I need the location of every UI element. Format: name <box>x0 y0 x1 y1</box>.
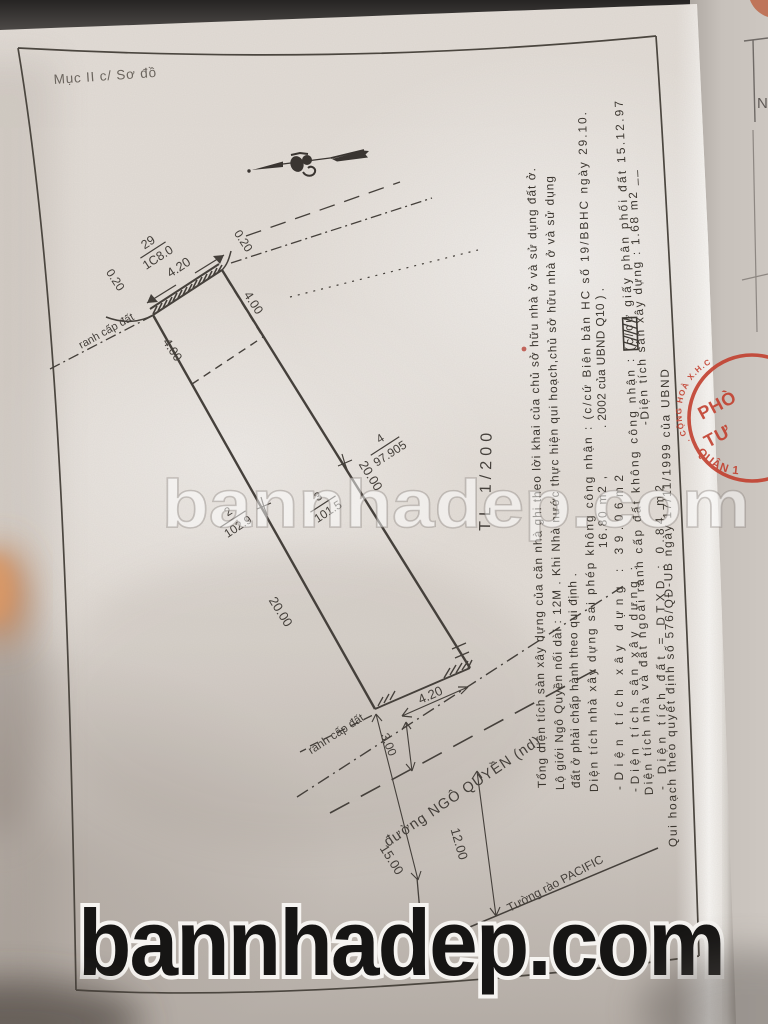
svg-text:. 2002 của UBND Q10 ) .: . 2002 của UBND Q10 ) . <box>593 288 609 428</box>
svg-text:N: N <box>757 95 768 112</box>
svg-text:bannhadep.com: bannhadep.com <box>78 890 724 995</box>
svg-text:bannhadep.com: bannhadep.com <box>162 466 750 542</box>
